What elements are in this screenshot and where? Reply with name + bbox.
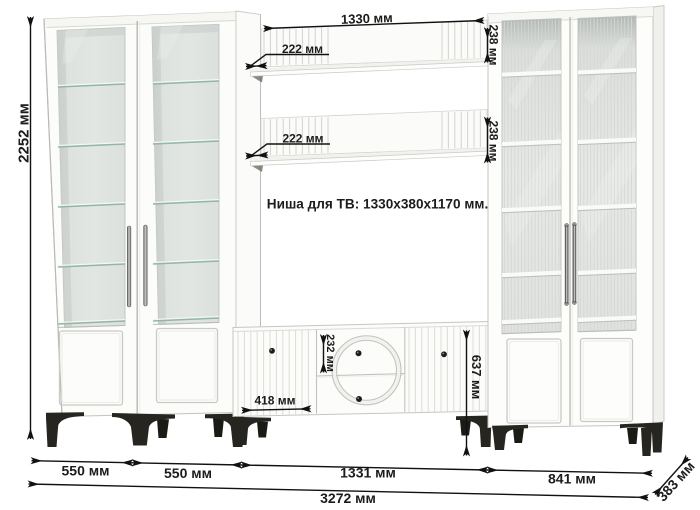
- svg-text:232 мм: 232 мм: [324, 334, 336, 372]
- svg-text:637 мм: 637 мм: [469, 355, 484, 400]
- svg-text:222 мм: 222 мм: [282, 42, 323, 56]
- svg-text:3272 мм: 3272 мм: [320, 490, 376, 506]
- svg-text:238 мм: 238 мм: [487, 120, 501, 161]
- svg-text:841 мм: 841 мм: [548, 471, 596, 487]
- svg-text:238 мм: 238 мм: [487, 24, 501, 65]
- svg-text:2252 мм: 2252 мм: [16, 103, 33, 163]
- svg-text:1330 мм: 1330 мм: [341, 10, 393, 27]
- svg-text:418 мм: 418 мм: [254, 394, 295, 408]
- svg-text:Ниша для ТВ: 1330х380х1170 мм.: Ниша для ТВ: 1330х380х1170 мм.: [267, 197, 488, 212]
- svg-text:550 мм: 550 мм: [62, 463, 110, 479]
- svg-text:1331 мм: 1331 мм: [340, 465, 396, 481]
- svg-text:550 мм: 550 мм: [164, 465, 212, 481]
- svg-text:222 мм: 222 мм: [282, 132, 323, 146]
